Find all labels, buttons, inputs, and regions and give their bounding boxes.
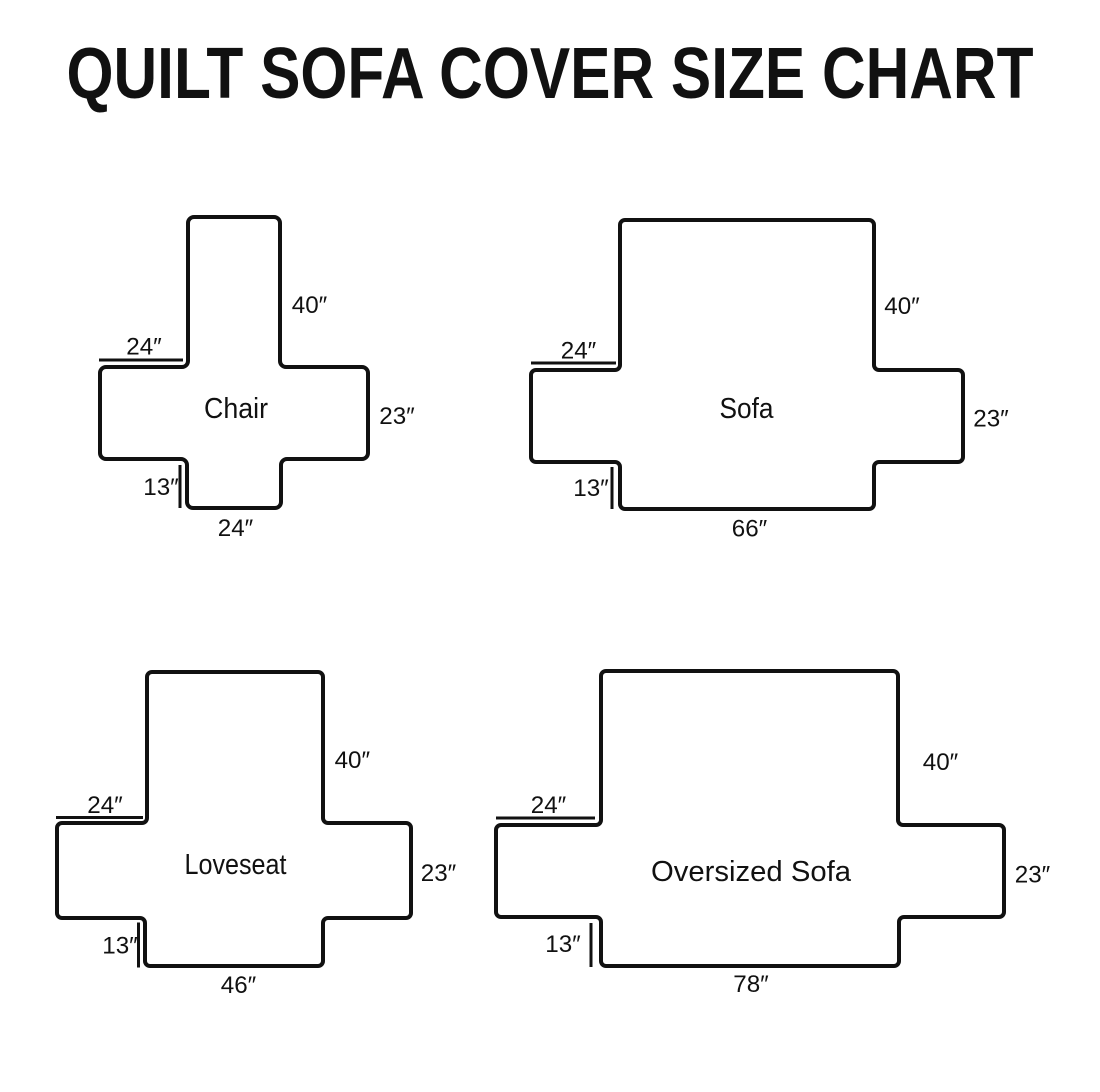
svg-text:Sofa: Sofa — [720, 393, 774, 425]
svg-text:23″: 23″ — [379, 403, 415, 430]
svg-text:13″: 13″ — [102, 933, 138, 960]
svg-text:13″: 13″ — [545, 931, 581, 958]
svg-text:78″: 78″ — [733, 971, 769, 998]
svg-text:23″: 23″ — [421, 860, 457, 887]
svg-text:24″: 24″ — [87, 792, 123, 819]
svg-text:46″: 46″ — [221, 972, 257, 999]
svg-text:40″: 40″ — [884, 293, 920, 320]
svg-text:24″: 24″ — [531, 792, 567, 819]
svg-text:Loveseat: Loveseat — [185, 849, 287, 881]
svg-text:23″: 23″ — [1015, 862, 1051, 889]
svg-text:24″: 24″ — [561, 338, 597, 365]
svg-text:QUILT SOFA COVER SIZE CHART: QUILT SOFA COVER SIZE CHART — [67, 34, 1034, 114]
svg-text:Chair: Chair — [204, 393, 268, 425]
svg-text:66″: 66″ — [732, 516, 768, 543]
svg-text:13″: 13″ — [573, 475, 609, 502]
svg-text:40″: 40″ — [292, 292, 328, 319]
svg-text:24″: 24″ — [218, 515, 254, 542]
svg-text:40″: 40″ — [335, 747, 371, 774]
svg-text:23″: 23″ — [973, 406, 1009, 433]
svg-text:Oversized Sofa: Oversized Sofa — [651, 856, 851, 888]
svg-text:13″: 13″ — [143, 474, 179, 501]
svg-text:24″: 24″ — [126, 334, 162, 361]
svg-text:40″: 40″ — [923, 749, 959, 776]
